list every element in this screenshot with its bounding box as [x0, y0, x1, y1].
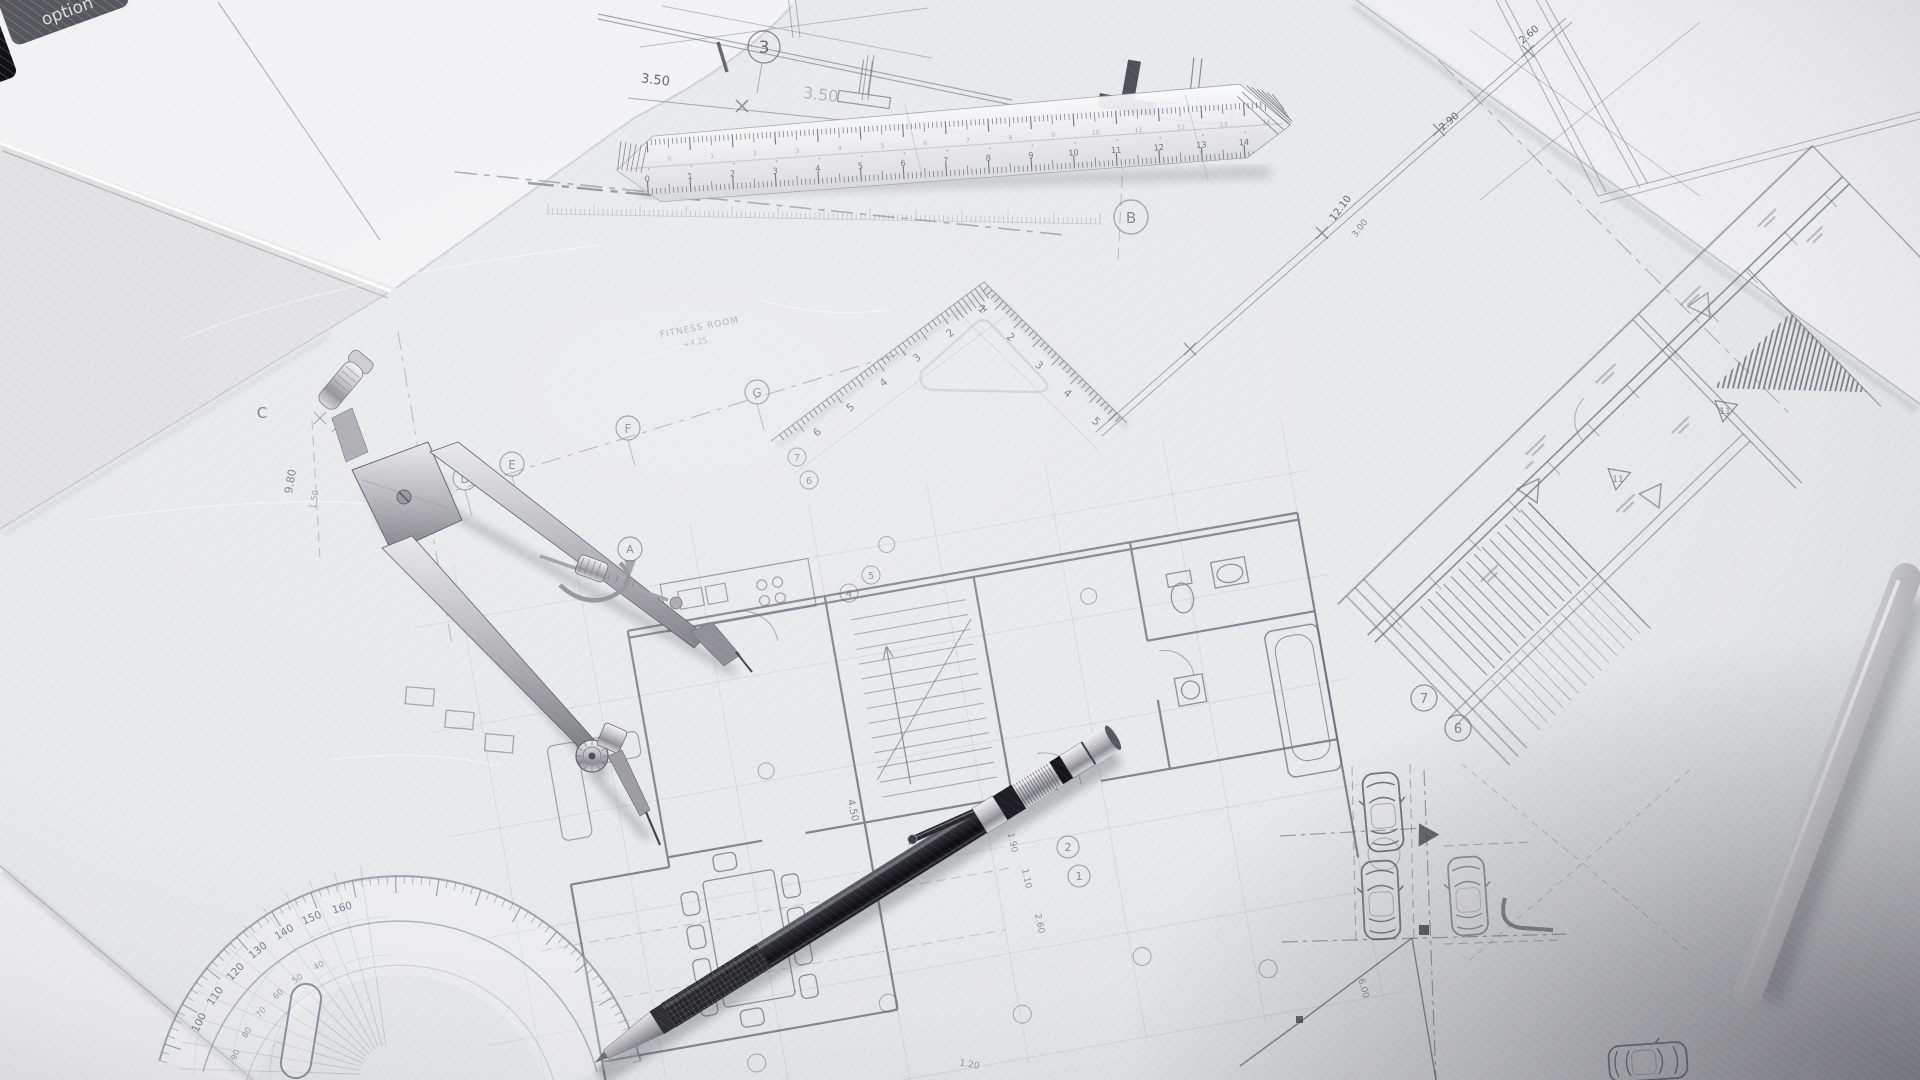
blueprint-desk-photo: option — [0, 0, 1920, 1080]
paper-texture-overlay — [0, 0, 1920, 1080]
photo-canvas: option — [0, 0, 1920, 1080]
